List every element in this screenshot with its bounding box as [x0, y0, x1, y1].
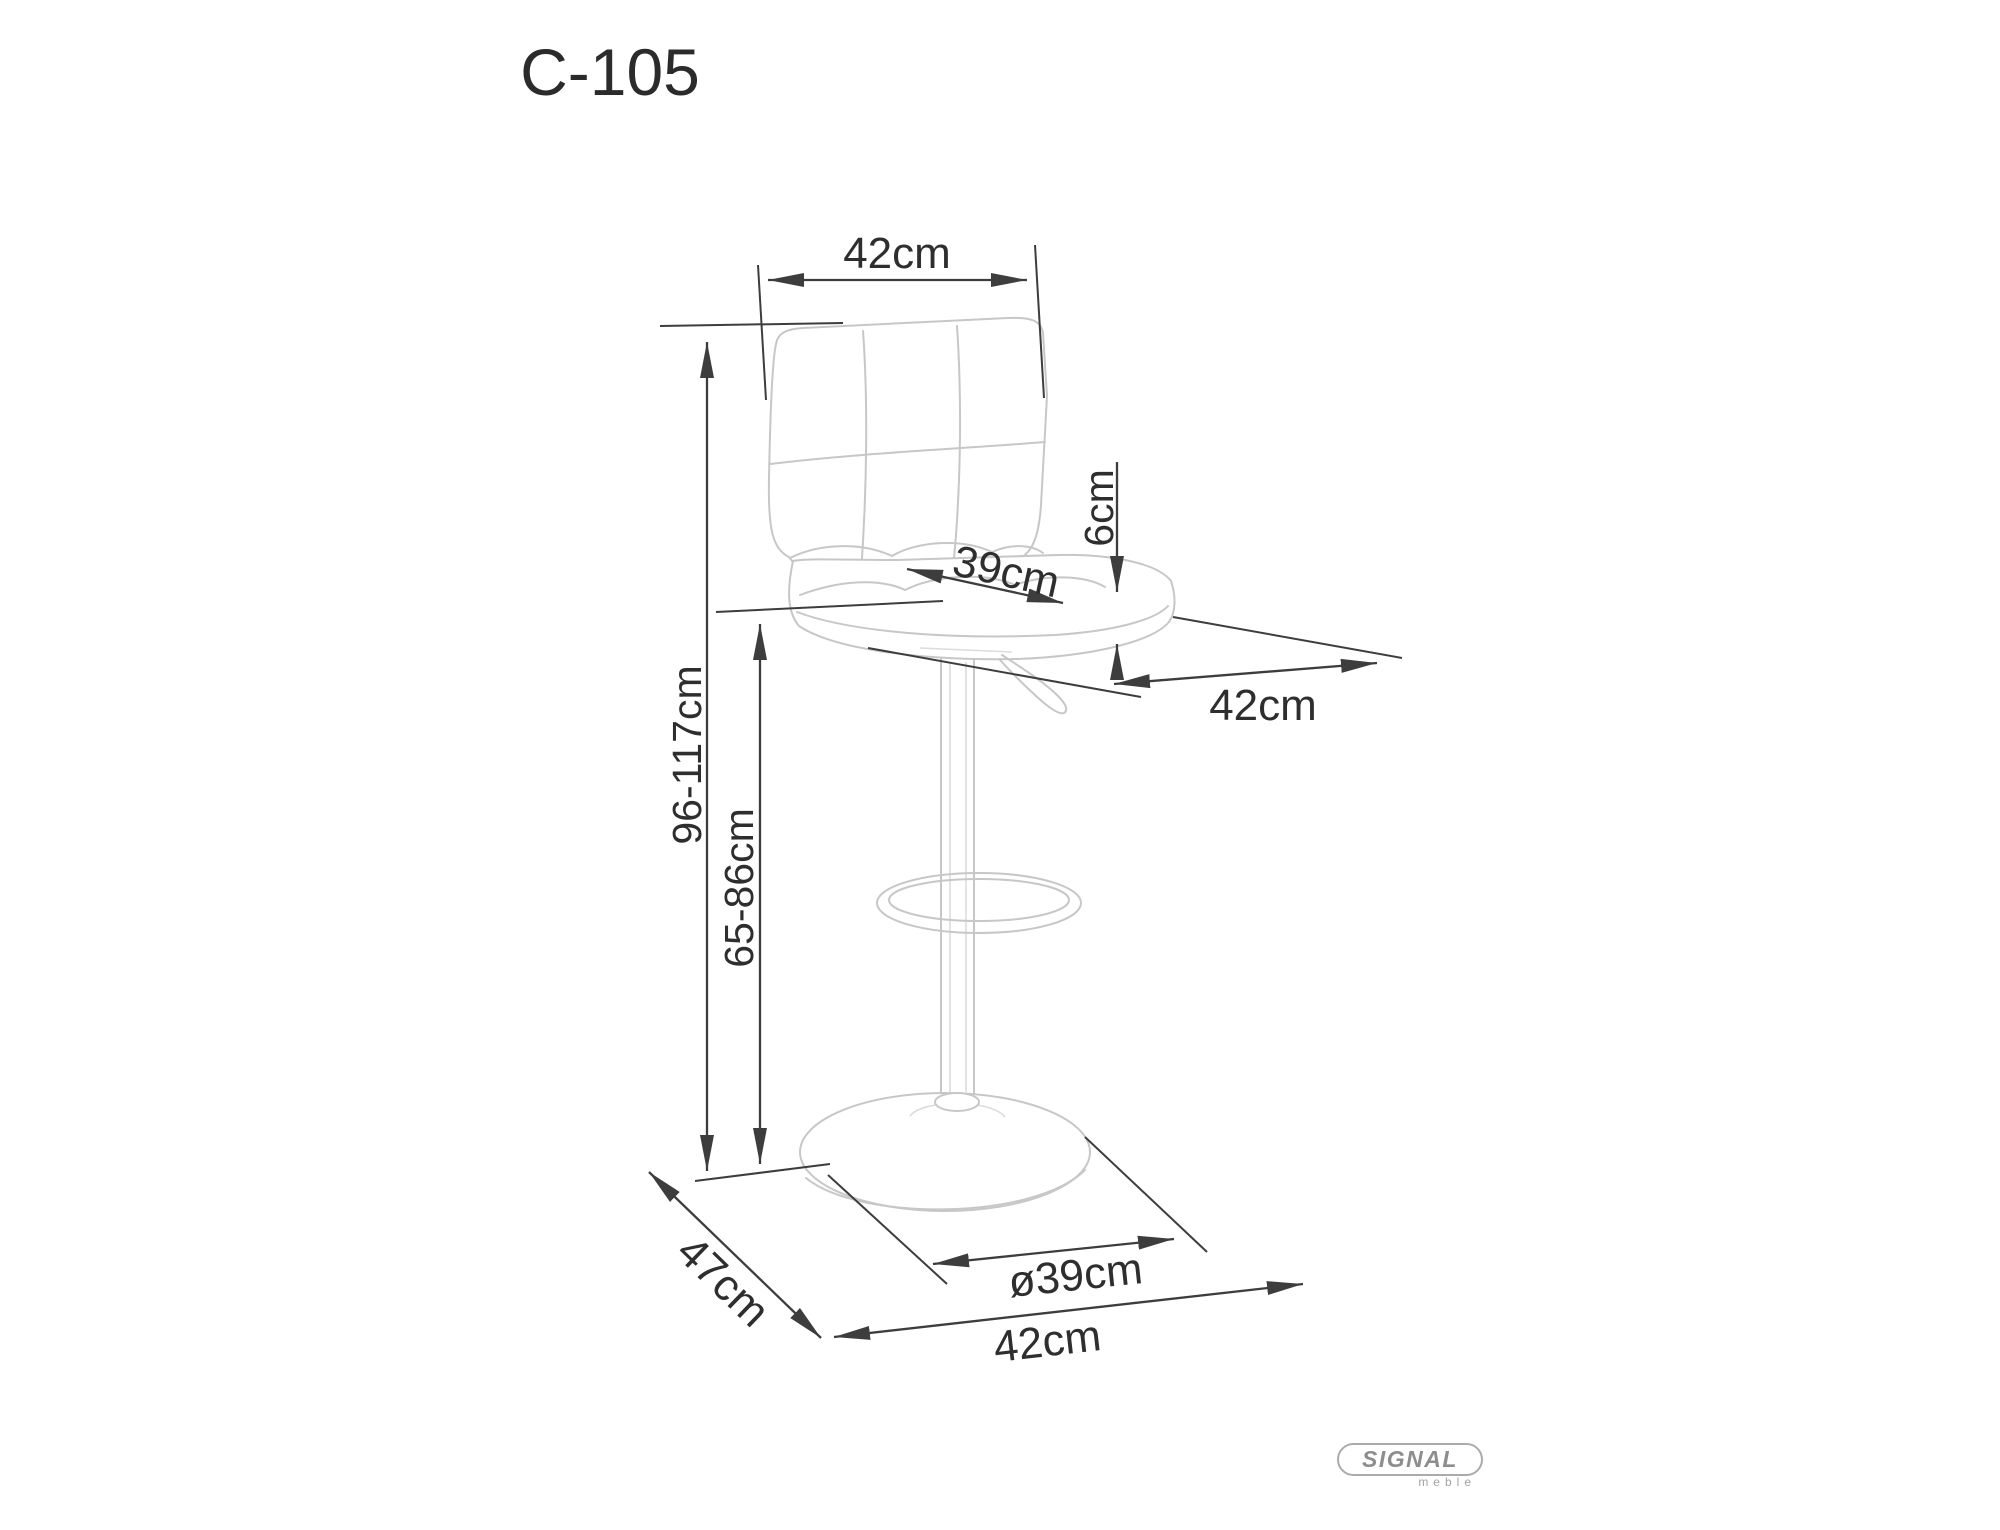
dimension-label: 42cm: [843, 229, 951, 278]
pole-collar: [935, 1093, 979, 1111]
page: { "page": { "background": "#ffffff" }, "…: [0, 0, 2000, 1530]
extension-line: [1173, 617, 1402, 658]
footrest-ring-outer: [877, 873, 1081, 933]
extension-line: [1085, 1137, 1207, 1252]
dimension-label: 96-117cm: [664, 665, 710, 844]
signal-logo: SIGNAL: [1337, 1443, 1483, 1476]
dimension-label: 42cm: [991, 1311, 1103, 1372]
dimension-seat-height: 65-86cm: [695, 601, 943, 1181]
dimension-label: 6cm: [1076, 469, 1122, 546]
technical-drawing: C-105 42cm: [0, 0, 2000, 1530]
gas-lift-lever: [1000, 655, 1066, 713]
dimension-label: 65-86cm: [716, 808, 762, 968]
stool-drawing: [769, 318, 1175, 1211]
logo-sub-text: meble: [1402, 1475, 1476, 1489]
dimension-label: 42cm: [1209, 681, 1317, 730]
extension-line: [758, 265, 766, 400]
page-title: C-105: [520, 35, 700, 109]
logo-brand-text: SIGNAL: [1339, 1445, 1481, 1473]
backrest-outline: [769, 318, 1047, 576]
footrest-ring-inner: [889, 879, 1069, 921]
dimension-base-depth: 47cm: [649, 1172, 821, 1338]
reference-line: [660, 323, 843, 326]
